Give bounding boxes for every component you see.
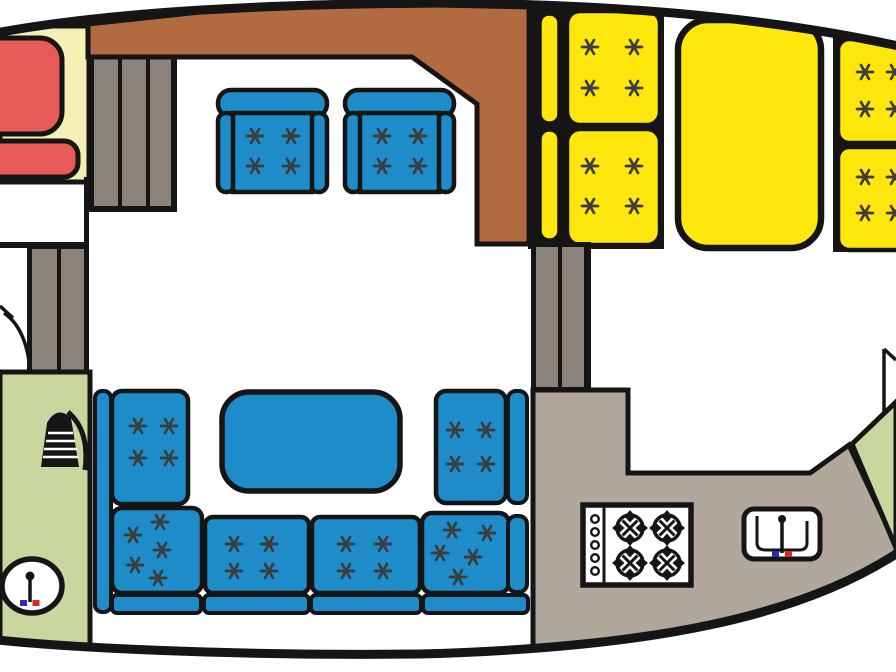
forward-steps bbox=[88, 48, 177, 212]
sofa-seat-strip-4 bbox=[423, 595, 528, 613]
bunk-mattress-bottom bbox=[567, 129, 660, 245]
sofa-armrest-right-lower bbox=[508, 516, 527, 592]
aft-double-berth bbox=[678, 20, 821, 248]
sofa-back-bottom-1 bbox=[205, 517, 309, 593]
sofa-armrest-right-upper bbox=[508, 391, 527, 503]
armchair-right bbox=[345, 90, 454, 192]
stove-icon bbox=[583, 505, 691, 585]
bunk-pillow-bottom bbox=[540, 130, 559, 240]
toilet-basin-icon bbox=[2, 559, 62, 613]
aft-lockers bbox=[531, 242, 591, 392]
bunk-pillow-top bbox=[540, 14, 559, 123]
red-foot-cushion bbox=[0, 141, 78, 177]
forward-cabin bbox=[0, 26, 89, 182]
sofa-back-bottom-2 bbox=[312, 517, 420, 593]
midship-bunks bbox=[528, 4, 664, 249]
floor-plan-canvas bbox=[0, 0, 896, 672]
sofa-back-left bbox=[112, 391, 188, 504]
bulkhead-vertical bbox=[84, 177, 89, 247]
quarter-bunk-bottom bbox=[838, 147, 896, 250]
red-double-berth bbox=[0, 38, 62, 134]
sofa-seat-strip-2 bbox=[204, 595, 309, 613]
sofa-back-right bbox=[436, 391, 506, 503]
quarter-bunk-top bbox=[838, 39, 896, 143]
sofa-seat-strip-3 bbox=[311, 595, 421, 613]
sofa-armrest-left bbox=[95, 391, 111, 612]
armchair-left bbox=[218, 90, 327, 192]
aft-quarter-bunks bbox=[833, 33, 896, 252]
sofa-seat-strip-1 bbox=[112, 595, 201, 613]
dinette-table bbox=[222, 392, 400, 491]
sink-icon bbox=[744, 509, 820, 559]
boat-floor-plan bbox=[0, 0, 896, 672]
bunk-mattress-top bbox=[567, 11, 660, 125]
forward-head bbox=[0, 372, 90, 648]
forward-lockers bbox=[27, 244, 89, 375]
